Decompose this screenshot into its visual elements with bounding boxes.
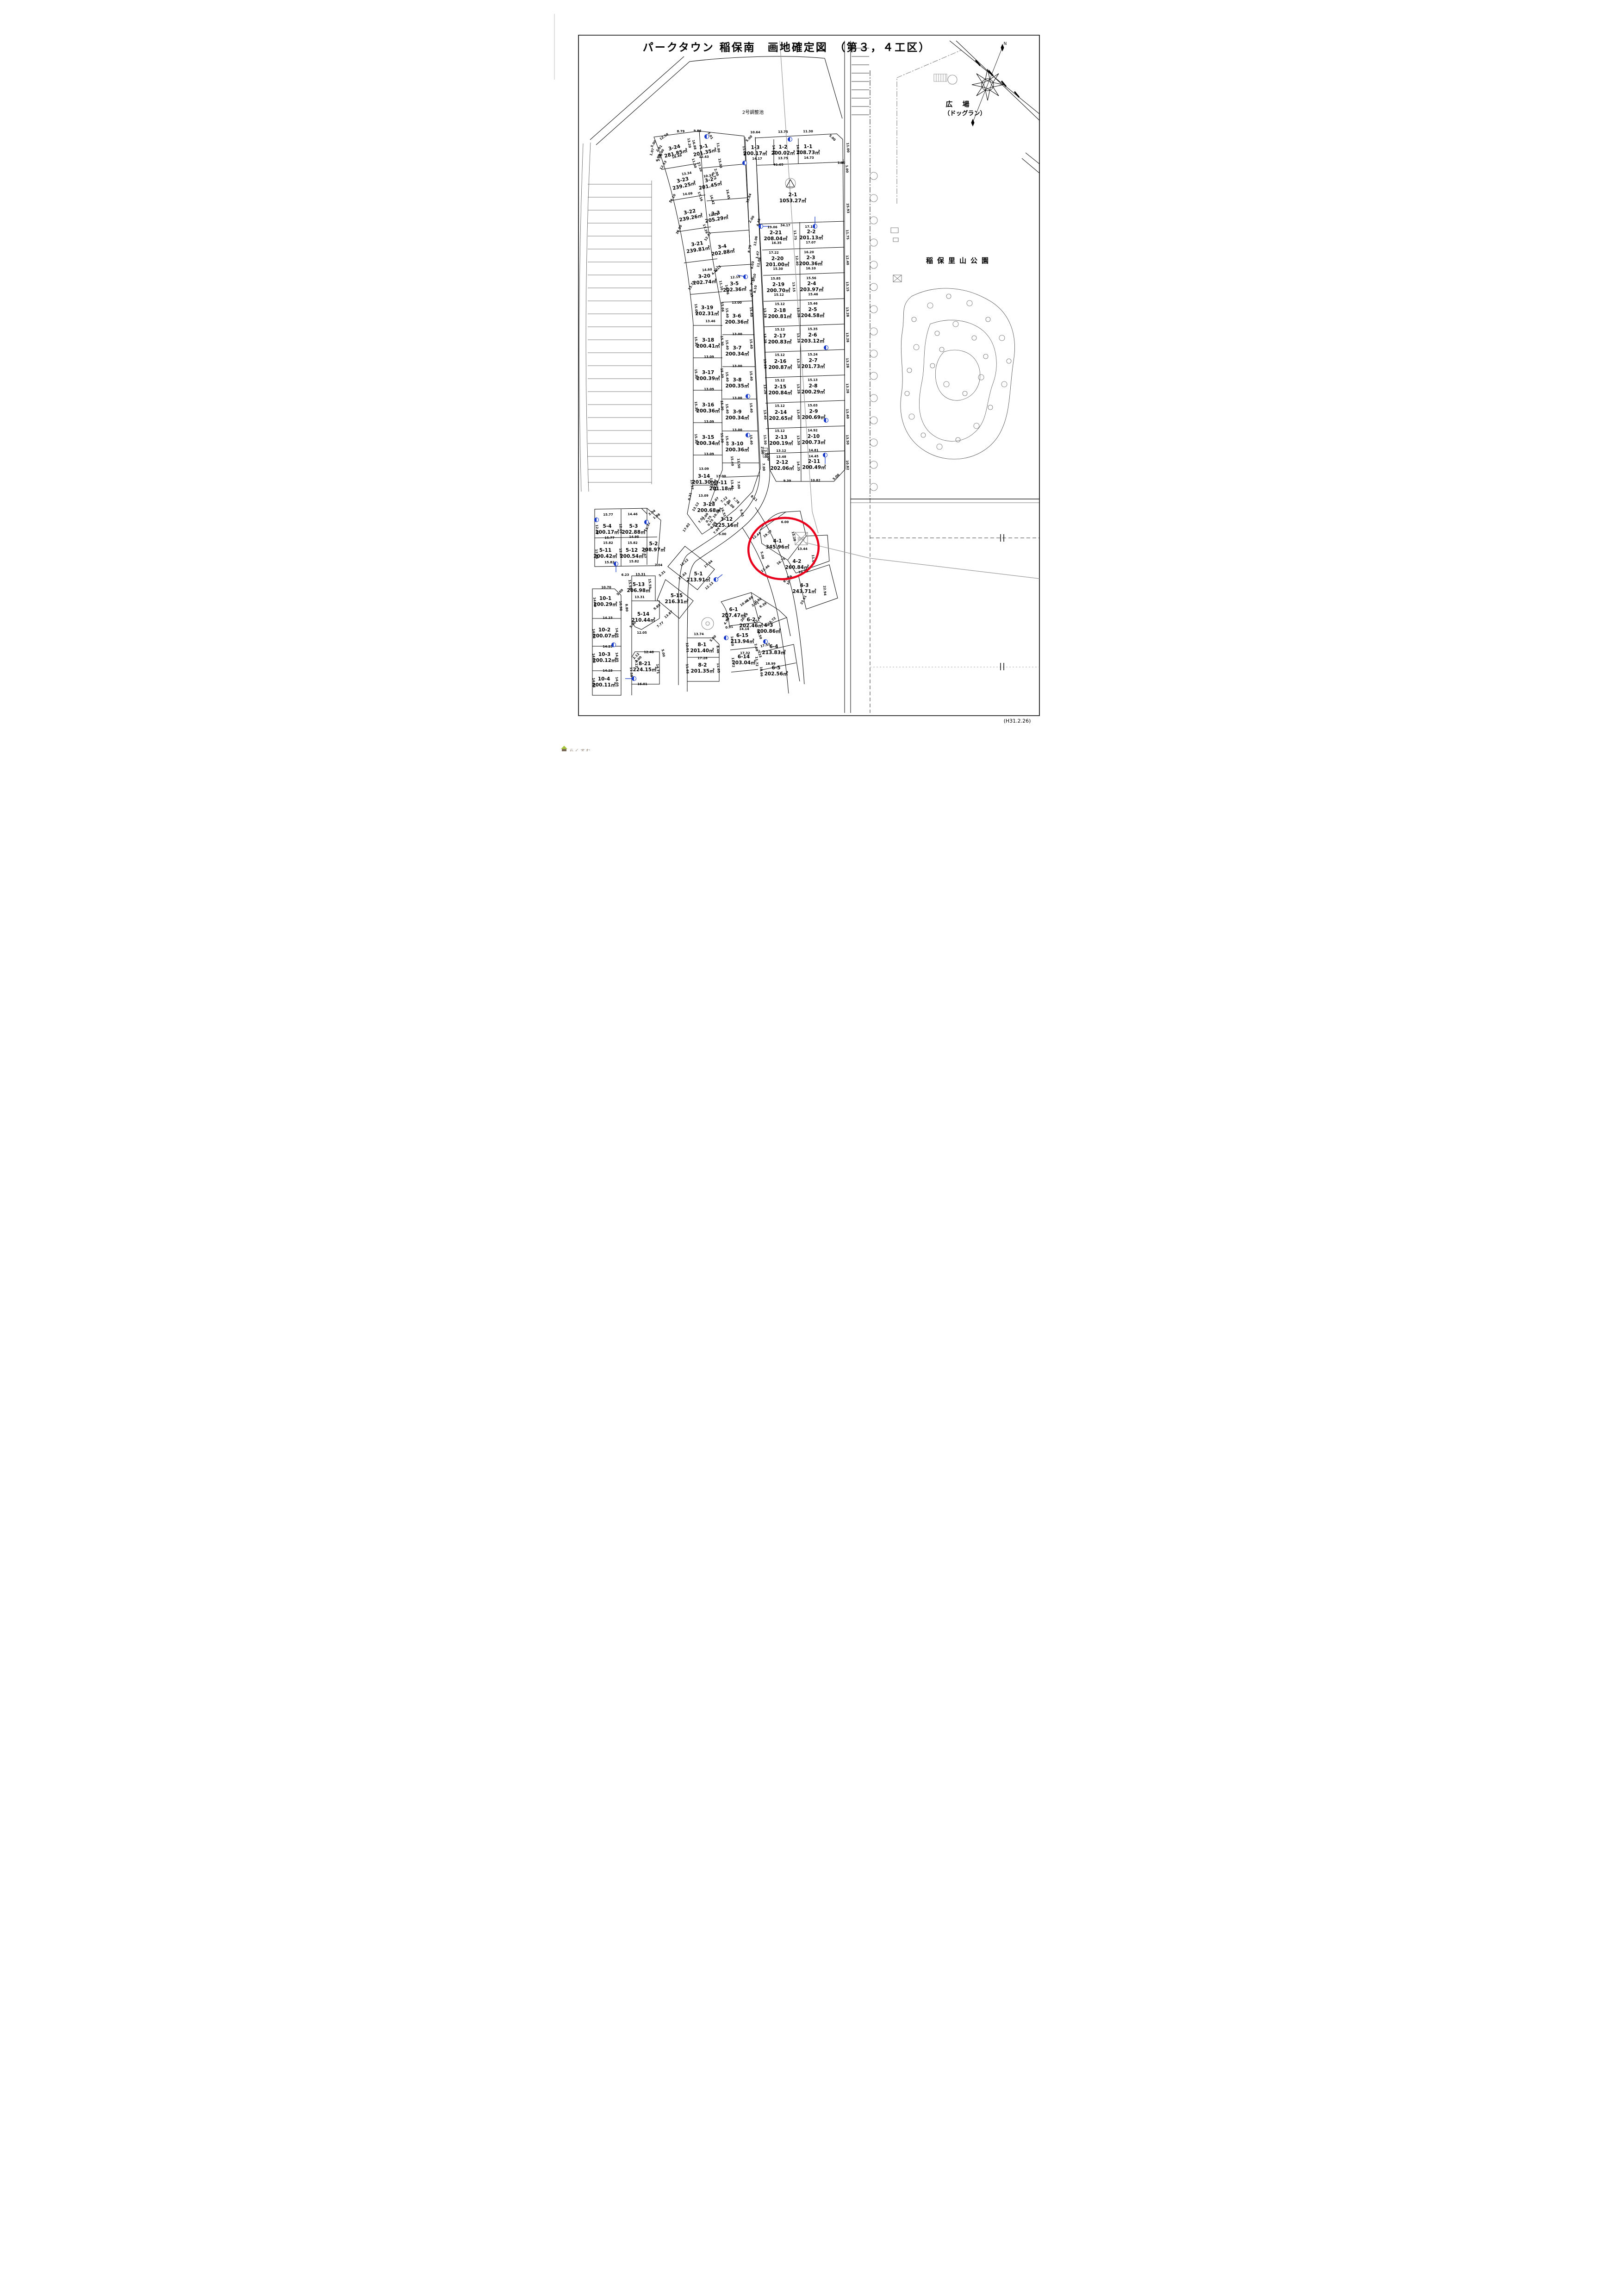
dimension-label: 12.66 [594, 549, 598, 559]
lot-label: 2-13200.19㎡ [769, 435, 793, 446]
tree-icon [963, 391, 967, 396]
dimension-label: 15.30 [720, 336, 724, 346]
tree-icon [978, 374, 984, 380]
tree-icon [930, 363, 935, 368]
dimension-label: 14.45 [808, 455, 819, 458]
dimension-label: 15.35 [808, 327, 818, 331]
dimension-label: 17.28 [697, 656, 708, 660]
tree-icon [1001, 381, 1007, 387]
lot-label: 2-12202.06㎡ [770, 460, 794, 471]
parcel-map: パークタウン 稲保南 画地確定図 （第３，４工区） 2号調整池 広 場 （ドッグ… [546, 0, 1077, 751]
dimension-label: 15.12 [775, 353, 785, 357]
svg-text:10-3: 10-3 [598, 652, 610, 657]
lot-label: 3-12225.16㎡ [715, 517, 739, 528]
benchmark-icon [746, 394, 750, 399]
svg-text:5-4: 5-4 [603, 524, 612, 529]
tree-icon [912, 317, 916, 322]
dimension-label: 10.82 [810, 479, 821, 482]
svg-text:201.13㎡: 201.13㎡ [799, 235, 823, 241]
svg-text:2-3: 2-3 [807, 255, 815, 261]
tree-icon [937, 444, 942, 449]
dimension-label: 15.12 [775, 328, 785, 331]
dimension-label: 15.40 [749, 339, 753, 349]
lot-label: 2-14202.65㎡ [769, 410, 793, 421]
svg-text:201.40㎡: 201.40㎡ [690, 648, 714, 654]
dimension-label: 11.10 [718, 280, 724, 291]
dimension-label: 5.00 [650, 139, 657, 148]
dimension-label: 15.03 [808, 404, 818, 407]
dimension-label: 12.67 [642, 548, 647, 558]
tower-label: 鉄塔 [797, 537, 805, 541]
svg-text:200.34㎡: 200.34㎡ [725, 415, 749, 421]
svg-text:201.35㎡: 201.35㎡ [690, 668, 715, 674]
tree-icon [870, 350, 877, 357]
svg-text:5-2: 5-2 [649, 541, 658, 547]
tree-icon [988, 405, 993, 410]
dimension-label: 15.30 [720, 433, 724, 443]
dimension-label: 15.24 [808, 353, 818, 356]
dimension-label: 2.12 [634, 660, 638, 668]
dimension-label: 22.94 [822, 586, 827, 596]
dimension-label: 13.75 [778, 156, 788, 160]
dimension-label: 10.98 [618, 601, 622, 611]
drawing-page: パークタウン 稲保南 画地確定図 （第３，４工区） 2号調整池 広 場 （ドッグ… [546, 0, 1077, 751]
dimension-label: 13.48 [776, 455, 786, 459]
svg-text:200.36㎡: 200.36㎡ [725, 447, 749, 453]
dimension-label: 14.81 [808, 449, 819, 452]
svg-text:10-2: 10-2 [598, 627, 610, 633]
dimension-label: 15.40 [725, 436, 729, 446]
lot-label: 5-14210.44㎡ [631, 611, 655, 623]
svg-text:2-7: 2-7 [809, 358, 818, 363]
svg-text:3-6: 3-6 [733, 313, 741, 319]
svg-text:2-19: 2-19 [772, 282, 784, 287]
dimension-label: 15.40 [725, 308, 729, 318]
svg-text:3-17: 3-17 [702, 370, 714, 375]
lot-label: 2-20201.00㎡ [765, 256, 790, 268]
dimension-label: 10.66 [759, 667, 763, 677]
dimension-label: 13.74 [694, 632, 704, 636]
dimension-label: 13.28 [845, 332, 849, 343]
tree-icon [870, 461, 877, 468]
dimension-label: 12.40 [845, 255, 849, 265]
lot-label: 5-12200.54㎡ [620, 548, 644, 559]
dimension-label: 14.23 [603, 616, 613, 620]
dimension-label: 13.09 [704, 420, 714, 424]
svg-text:6-1: 6-1 [729, 607, 738, 612]
dimension-label: 13.09 [698, 494, 709, 498]
dimension-label: 13.00 [732, 332, 742, 336]
benchmark-icon [764, 640, 768, 644]
dimension-label: 15.37 [709, 478, 713, 488]
tree-icon [870, 194, 877, 202]
dimension-label: 17.07 [806, 241, 816, 244]
tree-icon [972, 336, 976, 340]
dimension-label: 13.28 [763, 384, 767, 394]
dimension-label: 19.06 [767, 225, 777, 229]
dimension-label: 13.20 [687, 138, 692, 149]
svg-text:10-4: 10-4 [598, 676, 610, 682]
svg-text:200.19㎡: 200.19㎡ [769, 440, 793, 446]
plaza-sub-label: （ドッグラン） [944, 110, 986, 117]
dimension-label: 14.95 [629, 535, 639, 539]
dimension-label: 16.50 [675, 224, 683, 235]
dimension-label: 14.05 [591, 678, 596, 688]
lot-label: 4-1345.96㎡ [765, 538, 790, 550]
svg-text:2-16: 2-16 [774, 359, 786, 364]
dimension-label: 15.03 [717, 158, 723, 168]
dimension-label: 15.30 [694, 401, 698, 412]
benchmark-icon [813, 225, 817, 229]
dimension-label: 13.87 [664, 610, 674, 619]
dimension-label: 2.00 [748, 215, 755, 224]
dimension-label: 16.35 [771, 241, 782, 245]
dimension-label: 15.55 [628, 580, 632, 590]
map-line [893, 275, 902, 282]
dimension-label: 13.00 [732, 428, 742, 432]
dimension-label: 18.99 [765, 662, 776, 666]
lot-label: 2-6203.12㎡ [801, 332, 825, 344]
dimension-label: 11.75 [793, 230, 797, 240]
dimension-label: 12.40 [795, 256, 799, 266]
dimension-label: 7.00 [736, 481, 740, 489]
svg-text:202.88㎡: 202.88㎡ [622, 529, 646, 535]
dimension-label: 15.12 [775, 429, 785, 433]
dimension-label: 11.30 [803, 130, 813, 133]
lot-label: 3-18200.41㎡ [696, 337, 720, 349]
svg-text:200.34㎡: 200.34㎡ [725, 351, 749, 357]
dimension-label: 11.03 [742, 146, 746, 156]
dimension-label: 13.15 [791, 282, 796, 292]
lot-label: 3-4202.88㎡ [710, 242, 735, 257]
tree-icon [870, 283, 877, 291]
dimension-label: 13.28 [796, 384, 800, 394]
map-line [1001, 534, 1004, 670]
dimension-label: 15.37 [690, 480, 694, 490]
dimension-label: 10.82 [845, 460, 849, 470]
dimension-label: 13.50 [845, 435, 849, 445]
dimension-label: 15.82 [628, 541, 638, 545]
dimension-label: 15.40 [725, 372, 729, 382]
map-line [668, 546, 715, 590]
lot-label: 2-19200.70㎡ [766, 282, 790, 293]
dimension-label: 16.01 [637, 682, 647, 686]
dimension-label: 11.65 [716, 663, 720, 673]
dimension-label: 15.12 [775, 302, 785, 306]
tree-icon [944, 381, 949, 387]
dimension-label: 13.00 [732, 301, 742, 305]
svg-text:8-21: 8-21 [639, 661, 651, 667]
tree-icon [870, 306, 877, 313]
svg-text:3-20: 3-20 [698, 273, 710, 280]
svg-text:213.91㎡: 213.91㎡ [686, 577, 710, 583]
svg-text:202.31㎡: 202.31㎡ [695, 311, 719, 317]
svg-text:2-5: 2-5 [808, 307, 817, 312]
lot-label: 3-23239.25㎡ [671, 175, 696, 191]
dimension-label: 11.72 [731, 657, 735, 668]
dimension-label: 15.12 [775, 379, 785, 382]
dimension-label: 5.01 [739, 509, 745, 518]
dimension-label: 8.80 [624, 604, 628, 612]
dimension-label: 17.22 [769, 251, 779, 255]
tree-icon [909, 414, 914, 419]
tree-icon [905, 391, 909, 396]
dimension-label: 15.85 [771, 277, 781, 281]
map-title: パークタウン 稲保南 画地確定図 （第３，４工区） [643, 41, 931, 54]
benchmark-icon [645, 520, 649, 524]
dimension-label: 14.17 [752, 157, 762, 161]
svg-text:2-12: 2-12 [776, 460, 788, 465]
svg-text:4-1: 4-1 [773, 538, 782, 544]
svg-text:3-19: 3-19 [701, 305, 713, 311]
svg-text:200.81㎡: 200.81㎡ [768, 313, 792, 319]
dimension-label: 15.12 [774, 293, 784, 297]
dimension-label: 0.31 [687, 492, 692, 500]
lot-label: 8-1201.40㎡ [690, 642, 714, 654]
dimension-label: 13.50 [796, 435, 800, 445]
tree-icon [870, 417, 877, 424]
benchmark-icon [824, 346, 828, 350]
dimension-label: 15.00 [694, 304, 698, 314]
dimension-label: 15.30 [694, 337, 698, 347]
dimension-label: 12.48 [644, 650, 654, 654]
svg-text:6-15: 6-15 [736, 633, 748, 638]
svg-text:202.06㎡: 202.06㎡ [770, 465, 794, 471]
dimension-label: 13.44 [797, 547, 808, 551]
svg-text:2-4: 2-4 [808, 281, 816, 287]
dimension-label: 6.00 [781, 520, 789, 524]
lot-label: 1-3200.17㎡ [743, 145, 767, 156]
lot-label: 2-11200.49㎡ [802, 459, 826, 470]
lot-label: 4-2260.84㎡ [785, 559, 809, 570]
lot-label: 2-4203.97㎡ [800, 281, 824, 293]
dimension-label: 15.56 [806, 276, 816, 280]
map-line [852, 48, 869, 115]
tree-icon [948, 75, 957, 84]
dimension-label: 7.00 [761, 463, 765, 471]
dimension-label: 15.82 [629, 560, 639, 563]
benchmark-icon [743, 161, 747, 165]
dimension-label: 13.28 [763, 308, 767, 318]
dimension-label: 14.10 [668, 193, 677, 204]
svg-text:6-4: 6-4 [770, 644, 778, 649]
map-line [588, 184, 652, 482]
svg-text:200.69㎡: 200.69㎡ [802, 414, 826, 420]
dimension-label: 14.23 [603, 669, 613, 673]
dimension-label: 11.65 [685, 664, 689, 674]
benchmark-icon [614, 562, 618, 566]
dimension-label: 23.61 [800, 594, 808, 605]
dimension-label: 13.31 [634, 595, 645, 599]
dimension-label: 16.51 [720, 507, 727, 518]
dimension-label: 13.28 [845, 307, 849, 317]
svg-text:1-1: 1-1 [804, 144, 813, 150]
dimension-label: 14.54 [796, 144, 800, 155]
dimension-label: 14.14 [739, 627, 749, 631]
svg-text:204.58㎡: 204.58㎡ [801, 312, 825, 318]
dimension-label: 17.82 [682, 523, 691, 533]
lot-label: 6-5202.56㎡ [764, 665, 788, 677]
svg-text:203.12㎡: 203.12㎡ [801, 338, 825, 344]
svg-text:3-12: 3-12 [721, 517, 733, 522]
dimension-label: 9.86 [694, 129, 702, 133]
benchmark-icon [612, 643, 616, 647]
svg-text:5-15: 5-15 [671, 593, 683, 599]
dimension-label: 15.30 [694, 369, 698, 379]
dimension-label: 13.28 [845, 358, 849, 368]
dimension-label: 19.77 [763, 529, 773, 538]
dimension-label: 14.05 [615, 677, 619, 687]
svg-text:200.34㎡: 200.34㎡ [696, 440, 720, 446]
svg-text:1-3: 1-3 [751, 145, 760, 150]
dimension-label: 1.00 [727, 501, 735, 509]
tree-icon [967, 300, 972, 306]
dimension-label: 15.46 [808, 302, 818, 306]
map-line [786, 180, 795, 187]
svg-text:3-18: 3-18 [702, 337, 714, 343]
tree-icon [1007, 359, 1011, 363]
dimension-label: 15.30 [720, 400, 724, 411]
benchmark-icon [595, 518, 599, 522]
dimension-label: 14.92 [808, 429, 818, 432]
dimension-label: 16.10 [806, 267, 816, 270]
dimension-label: 13.28 [763, 333, 767, 343]
svg-text:10-1: 10-1 [599, 596, 611, 601]
dimension-label: 8.79 [677, 130, 685, 133]
map-line [1022, 153, 1039, 173]
dimension-label: 15.30 [694, 434, 698, 444]
dimension-label: 14.23 [603, 645, 613, 649]
lot-label: 2-21208.04㎡ [764, 230, 788, 242]
benchmark-icon [746, 433, 750, 437]
lot-label: 2-3200.36㎡ [799, 255, 823, 267]
dimension-label: 12.19 [730, 275, 740, 280]
svg-text:3-16: 3-16 [702, 402, 714, 408]
dimension-label: 13.41 [730, 480, 734, 490]
dimension-label: 11.50 [763, 435, 767, 445]
dimension-label: 23.64 [746, 193, 752, 204]
svg-text:3-5: 3-5 [730, 281, 739, 287]
dimension-label: 11.50 [691, 158, 697, 168]
benchmark-icon [823, 453, 827, 457]
dimension-label: 15.40 [749, 371, 753, 381]
tree-icon [939, 347, 944, 352]
dimension-label: 9.85 [653, 603, 661, 611]
dimension-label: 12.06 [753, 236, 759, 246]
svg-text:213.83㎡: 213.83㎡ [762, 649, 786, 655]
benchmark-icon [744, 275, 748, 279]
dimension-label: 3.31 [658, 570, 666, 578]
svg-text:2-18: 2-18 [774, 308, 786, 313]
plaza-label: 広 場 [945, 100, 973, 108]
svg-text:345.96㎡: 345.96㎡ [765, 544, 790, 550]
lot-label: 2-7201.73㎡ [801, 358, 825, 369]
tree-icon [706, 622, 709, 625]
dimension-label: 5.10 [752, 273, 757, 281]
svg-text:200.29㎡: 200.29㎡ [801, 389, 825, 395]
dimension-label: 7.77 [656, 621, 665, 629]
benchmark-icon [759, 225, 763, 229]
dimension-label: 14.55 [771, 145, 776, 155]
tree-icon [870, 439, 877, 446]
dimension-label: 4.12 [714, 265, 722, 273]
dimension-label: 10.64 [750, 131, 760, 134]
svg-text:2-9: 2-9 [809, 409, 818, 414]
lot-label: 2-2201.13㎡ [799, 229, 823, 241]
map-line [919, 320, 996, 442]
svg-text:3-10: 3-10 [731, 441, 743, 447]
svg-text:2-10: 2-10 [808, 434, 820, 439]
svg-text:200.73㎡: 200.73㎡ [802, 439, 826, 445]
lot-label: 2-8200.29㎡ [801, 383, 825, 395]
dimension-label: 5.00 [616, 588, 624, 597]
dimension-label: 13.00 [732, 396, 742, 400]
svg-text:5-11: 5-11 [599, 548, 611, 553]
dimension-label: 15.46 [808, 293, 818, 296]
dimension-label: 7.78 [732, 497, 740, 505]
dimension-label: 11.45 [713, 481, 717, 491]
benchmark-icon [632, 677, 636, 681]
dimension-label: 11.50 [736, 458, 740, 468]
svg-text:202.74㎡: 202.74㎡ [693, 278, 717, 286]
svg-text:200.36㎡: 200.36㎡ [725, 319, 749, 325]
dimension-label: 13.28 [763, 359, 767, 369]
dimension-label: 7.04 [655, 563, 663, 567]
dimension-label: 15.40 [725, 404, 729, 414]
lot-label: 8-2201.35㎡ [690, 662, 715, 674]
lot-label: 5-3202.88㎡ [622, 524, 646, 535]
dimension-label: 12.69 [618, 524, 622, 534]
map-line [845, 41, 851, 713]
svg-text:200.17㎡: 200.17㎡ [743, 150, 767, 156]
map-line [950, 41, 1039, 120]
svg-text:200.54㎡: 200.54㎡ [620, 553, 644, 559]
dimension-label: 11.75 [845, 230, 849, 240]
lot-label: 3-19202.31㎡ [695, 305, 719, 317]
dimension-label: 15.77 [604, 536, 615, 540]
dimension-label: 16.88 [691, 139, 697, 150]
dimension-label: 14.05 [615, 652, 619, 662]
lot-label: 3-17200.39㎡ [696, 370, 720, 381]
dimension-label: 14.46 [628, 512, 638, 516]
tree-icon [935, 331, 939, 336]
svg-text:2-1: 2-1 [789, 192, 797, 198]
dimension-label: 8.75 [747, 244, 752, 253]
svg-text:1053.27㎡: 1053.27㎡ [779, 198, 807, 204]
lot-label: 2-15200.84㎡ [768, 384, 792, 396]
map-line [579, 143, 591, 492]
dimension-label: 11.00 [846, 143, 850, 153]
map-line [755, 507, 804, 684]
svg-text:4-3: 4-3 [800, 583, 809, 588]
dimension-label: 14.60 [702, 268, 712, 272]
tree-icon [956, 437, 960, 442]
dimension-label: 13.40 [796, 409, 800, 419]
logo-text: らくすむ [569, 749, 591, 751]
dimension-label: 5.00 [759, 551, 765, 560]
svg-text:2-6: 2-6 [808, 332, 817, 338]
dimension-label: 13.75 [778, 130, 788, 134]
map-line [897, 50, 962, 204]
tree-icon [946, 294, 951, 299]
map-line [805, 543, 1039, 579]
dimension-label: 13.09 [704, 387, 714, 391]
map-line [901, 288, 1015, 459]
svg-text:3-8: 3-8 [733, 377, 742, 383]
svg-text:200.35㎡: 200.35㎡ [725, 383, 749, 389]
logo-icon: らくすむ [561, 746, 591, 751]
dimension-label: 14.05 [591, 653, 596, 663]
